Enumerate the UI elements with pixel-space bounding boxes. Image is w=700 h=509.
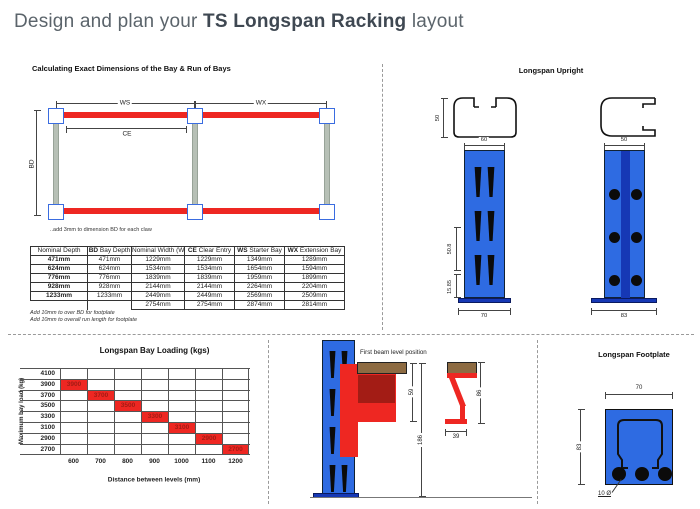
- loading-cell: [141, 434, 168, 444]
- upright-heading: Longspan Upright: [402, 66, 700, 75]
- beam-profile-side: [460, 404, 465, 420]
- upright-baseplate: [591, 298, 657, 303]
- loading-cell: [60, 412, 87, 422]
- shelf-board: [357, 362, 407, 374]
- y-tick-label: 3700: [20, 391, 60, 401]
- loading-cell: [222, 401, 249, 411]
- title-prefix: Design and plan your: [14, 11, 203, 32]
- table-cell: 1289mm: [285, 256, 345, 265]
- loading-row: 33003300: [20, 412, 250, 423]
- upright-baseplate: [458, 298, 511, 303]
- dimension-line-bottom-offset: [456, 274, 457, 298]
- table-cell: 2449mm: [185, 292, 235, 301]
- loading-cell: [60, 434, 87, 444]
- table-cell: 1229mm: [132, 256, 185, 265]
- loading-cell: [195, 401, 222, 411]
- table-cell: 1959mm: [235, 274, 285, 283]
- upright-post: [48, 108, 64, 124]
- loading-cell: [168, 412, 195, 422]
- table-cell: 2204mm: [285, 283, 345, 292]
- loading-cell: 3700: [87, 391, 114, 401]
- loading-cell: [168, 401, 195, 411]
- y-tick-label: 2900: [20, 434, 60, 444]
- dimension-line-base-width: [591, 310, 657, 311]
- upright-slot: [329, 389, 336, 416]
- bay-dimensions-table: Nominal DepthBD Bay DepthNominal Width (…: [30, 246, 345, 310]
- upright-slot: [474, 167, 482, 197]
- dimension-line-ce: [66, 128, 187, 129]
- loading-cell: [222, 380, 249, 390]
- table-header-cell: WS Starter Bay: [235, 247, 285, 256]
- loading-cell: 3100: [168, 423, 195, 433]
- beam-profile-top-flange: [447, 373, 477, 378]
- loading-cell: [114, 369, 141, 379]
- loading-cell: [87, 380, 114, 390]
- upright-slot: [487, 167, 495, 197]
- table-header-cell: WX Extension Bay: [285, 247, 345, 256]
- table-row: 776mm776mm1839mm1839mm1959mm1899mm: [31, 274, 345, 283]
- title-emphasis: TS Longspan Racking: [203, 11, 406, 32]
- loading-cell: 3300: [141, 412, 168, 422]
- dimension-label-wx: WX: [254, 100, 268, 107]
- dimension-line-bd: [36, 110, 37, 216]
- upright-hole: [609, 189, 620, 200]
- table-cell: 1233mm: [88, 292, 132, 301]
- table-cell: 471mm: [88, 256, 132, 265]
- dimension-line-slot-pitch: [456, 227, 457, 271]
- dimension-label-upright-width: 60: [479, 137, 489, 143]
- dimension-label-ws: WS: [118, 100, 132, 107]
- dimension-line-upright-width: [464, 145, 505, 146]
- table-cell: 2144mm: [185, 283, 235, 292]
- y-tick-label: 3900: [20, 380, 60, 390]
- table-header-cell: Nominal Width (W): [132, 247, 185, 256]
- loading-cell: [141, 391, 168, 401]
- table-cell: 471mm: [31, 256, 88, 265]
- x-tick-label: 600: [60, 458, 87, 465]
- loading-cell: [60, 391, 87, 401]
- table-cell: 1899mm: [285, 274, 345, 283]
- upright-post: [319, 108, 335, 124]
- table-cell: 1654mm: [235, 265, 285, 274]
- loading-cell: [168, 369, 195, 379]
- loading-cell: [168, 445, 195, 455]
- upright-slot: [329, 351, 336, 378]
- upright-post: [319, 204, 335, 220]
- floor-line: [310, 497, 532, 498]
- table-cell: 2754mm: [132, 301, 185, 310]
- loading-cell: [114, 445, 141, 455]
- loading-grid: 4100390039003700370035003500330033003100…: [20, 368, 250, 455]
- upright-post: [48, 204, 64, 220]
- table-cell: 1233mm: [31, 292, 88, 301]
- table-row: 928mm928mm2144mm2144mm2264mm2204mm: [31, 283, 345, 292]
- x-tick-label: 1100: [195, 458, 222, 465]
- upright-slot: [474, 255, 482, 285]
- table-cell: 776mm: [88, 274, 132, 283]
- table-cell: [88, 301, 132, 310]
- beam-bracket-leg: [340, 422, 358, 457]
- upright-hole: [631, 275, 642, 286]
- footnote: Add 10mm to overall run length for footp…: [30, 317, 137, 323]
- upright-post: [187, 204, 203, 220]
- footplate-hole: [658, 467, 672, 481]
- upright-slot: [474, 211, 482, 241]
- dimension-label-slot-pitch: 50.8: [447, 242, 453, 257]
- dimension-label-base-width: 70: [479, 313, 489, 319]
- dimension-label-profile-height: 86: [477, 388, 483, 399]
- loading-row: 37003700: [20, 391, 250, 402]
- loading-cell: [87, 434, 114, 444]
- upright-profile-drawing: [595, 93, 661, 141]
- table-cell: 2569mm: [235, 292, 285, 301]
- loading-cell: [114, 391, 141, 401]
- bay-loading-panel: Longspan Bay Loading (kgs) Maximum bay l…: [12, 338, 264, 506]
- first-beam-panel: First beam level position 59 186 39 86: [268, 336, 537, 509]
- x-tick-label: 1000: [168, 458, 195, 465]
- title-suffix: layout: [406, 11, 463, 32]
- upright-front-view: [464, 150, 505, 298]
- upright-side-view: [604, 150, 645, 298]
- upright-post: [187, 108, 203, 124]
- loading-cell: [168, 434, 195, 444]
- frame-brace: [192, 123, 198, 206]
- footplate-panel: Longspan Footplate 70 83 10 Ø: [538, 336, 700, 509]
- dimension-label-profile-width: 39: [451, 434, 462, 440]
- footplate-heading: Longspan Footplate: [568, 350, 700, 359]
- loading-cell: [141, 445, 168, 455]
- table-cell: 2874mm: [235, 301, 285, 310]
- upright-slot: [487, 255, 495, 285]
- loading-row: 29002900: [20, 434, 250, 445]
- x-tick-label: 700: [87, 458, 114, 465]
- table-cell: 1229mm: [185, 256, 235, 265]
- upright-slot: [329, 465, 336, 492]
- loading-cell: [87, 423, 114, 433]
- dimension-label-base-width: 83: [619, 313, 629, 319]
- table-cell: 1839mm: [132, 274, 185, 283]
- loading-cell: [114, 423, 141, 433]
- loading-cell: [222, 412, 249, 422]
- loading-cell: [168, 380, 195, 390]
- dimension-label-profile-height: 50: [435, 113, 441, 123]
- y-tick-label: 3500: [20, 401, 60, 411]
- table-cell: 2754mm: [185, 301, 235, 310]
- loading-cell: [87, 369, 114, 379]
- loading-cell: 3900: [60, 380, 87, 390]
- dimension-line-footplate-width: [605, 394, 673, 395]
- loading-row: 31003100: [20, 423, 250, 434]
- loading-cell: [222, 391, 249, 401]
- upright-slot: [329, 427, 336, 454]
- loading-cell: [195, 380, 222, 390]
- table-cell: [31, 301, 88, 310]
- bay-loading-title: Longspan Bay Loading (kgs): [47, 346, 262, 355]
- footnote: Add 10mm to over BD for footplate: [30, 310, 115, 316]
- dimension-label-footplate-width: 70: [634, 385, 645, 391]
- loading-cell: [114, 380, 141, 390]
- table-cell: 776mm: [31, 274, 88, 283]
- table-cell: 624mm: [88, 265, 132, 274]
- table-cell: 1594mm: [285, 265, 345, 274]
- table-cell: 2264mm: [235, 283, 285, 292]
- loading-row: 4100: [20, 369, 250, 380]
- table-cell: 624mm: [31, 265, 88, 274]
- dimension-line-upright-width: [604, 145, 645, 146]
- x-tick-label: 1200: [222, 458, 249, 465]
- upright-hole: [631, 189, 642, 200]
- frame-brace: [324, 123, 330, 206]
- upright-flange-stripe: [621, 151, 630, 299]
- beam-recess: [358, 375, 395, 403]
- y-tick-label: 4100: [20, 369, 60, 379]
- loading-cell: [222, 434, 249, 444]
- loading-cell: [195, 423, 222, 433]
- table-row: 2754mm2754mm2874mm2814mm: [31, 301, 345, 310]
- loading-cell: [222, 369, 249, 379]
- dimension-label-footplate-height: 83: [577, 442, 583, 453]
- dimension-label-ce: CE: [120, 131, 133, 138]
- y-tick-label: 3300: [20, 412, 60, 422]
- x-axis-title: Distance between levels (mm): [108, 477, 200, 484]
- footplate-plate: [605, 409, 673, 485]
- loading-cell: [114, 434, 141, 444]
- dimension-label-first-level: 186: [418, 433, 424, 447]
- loading-cell: [141, 369, 168, 379]
- upright-slot: [487, 211, 495, 241]
- table-header-cell: CE Clear Entry: [185, 247, 235, 256]
- table-cell: 1534mm: [132, 265, 185, 274]
- dimension-line-profile-height: [443, 98, 444, 138]
- loading-cell: [195, 369, 222, 379]
- table-row: 471mm471mm1229mm1229mm1349mm1289mm: [31, 256, 345, 265]
- table-header-cell: Nominal Depth: [31, 247, 88, 256]
- table-cell: 928mm: [31, 283, 88, 292]
- loading-cell: [114, 412, 141, 422]
- loading-cell: [60, 423, 87, 433]
- beam-profile-bottom-flange: [445, 419, 467, 424]
- bay-dimensions-panel: Calculating Exact Dimensions of the Bay …: [30, 62, 382, 334]
- dimension-label-upright-width: 50: [619, 137, 629, 143]
- upright-profile-drawing: [450, 95, 520, 141]
- loading-cell: [60, 369, 87, 379]
- loading-cell: [222, 423, 249, 433]
- panel-divider-horizontal: [8, 334, 694, 335]
- loading-cell: 2700: [222, 445, 249, 455]
- loading-cell: [195, 412, 222, 422]
- dimension-line-base-width: [458, 310, 511, 311]
- table-cell: 1534mm: [185, 265, 235, 274]
- table-cell: 2509mm: [285, 292, 345, 301]
- loading-cell: [87, 401, 114, 411]
- table-row: 624mm624mm1534mm1534mm1654mm1594mm: [31, 265, 345, 274]
- loading-cell: [141, 401, 168, 411]
- loading-cell: [87, 412, 114, 422]
- table-header-cell: BD Bay Depth: [88, 247, 132, 256]
- dimension-line-first-level: [421, 363, 422, 497]
- table-cell: 1839mm: [185, 274, 235, 283]
- footplate-hole: [612, 467, 626, 481]
- claw-note: ..add 3mm to dimension BD for each claw: [50, 227, 152, 233]
- loading-x-labels: 600700800900100011001200: [60, 458, 249, 465]
- loading-cell: [60, 401, 87, 411]
- hole-diameter-label: 10 Ø: [598, 491, 611, 497]
- upright-slot: [341, 465, 348, 492]
- footplate-hole: [635, 467, 649, 481]
- dimension-label-bd: BD: [29, 157, 36, 170]
- dimension-label-bottom-offset: 15.85: [447, 278, 453, 296]
- dimension-label-beam-face: 59: [409, 387, 415, 398]
- y-tick-label: 3100: [20, 423, 60, 433]
- loading-cell: [195, 391, 222, 401]
- table-cell: 2449mm: [132, 292, 185, 301]
- loading-cell: [87, 445, 114, 455]
- upright-panel: Longspan Upright 50 60 50.8 15.85 70 50 …: [382, 60, 700, 334]
- loading-cell: 3500: [114, 401, 141, 411]
- loading-cell: [168, 391, 195, 401]
- page-title: Design and plan your TS Longspan Racking…: [14, 11, 464, 33]
- loading-cell: [195, 445, 222, 455]
- upright-hole: [609, 232, 620, 243]
- table-cell: 2814mm: [285, 301, 345, 310]
- bay-dimensions-heading: Calculating Exact Dimensions of the Bay …: [32, 64, 231, 73]
- table-cell: 2144mm: [132, 283, 185, 292]
- loading-row: 35003500: [20, 401, 250, 412]
- frame-brace: [53, 123, 59, 206]
- loading-cell: [60, 445, 87, 455]
- dimension-line-profile-width: [445, 431, 467, 432]
- upright-hole: [631, 232, 642, 243]
- upright-hole: [609, 275, 620, 286]
- loading-row: 27002700: [20, 445, 250, 456]
- loading-cell: [141, 423, 168, 433]
- y-tick-label: 2700: [20, 445, 60, 455]
- first-beam-label: First beam level position: [360, 349, 427, 356]
- loading-row: 39003900: [20, 380, 250, 391]
- x-tick-label: 800: [114, 458, 141, 465]
- loading-cell: [141, 380, 168, 390]
- table-cell: 1349mm: [235, 256, 285, 265]
- table-row: 1233mm1233mm2449mm2449mm2569mm2509mm: [31, 292, 345, 301]
- table-cell: 928mm: [88, 283, 132, 292]
- x-tick-label: 900: [141, 458, 168, 465]
- beam-profile-web: [449, 378, 466, 406]
- loading-cell: 2900: [195, 434, 222, 444]
